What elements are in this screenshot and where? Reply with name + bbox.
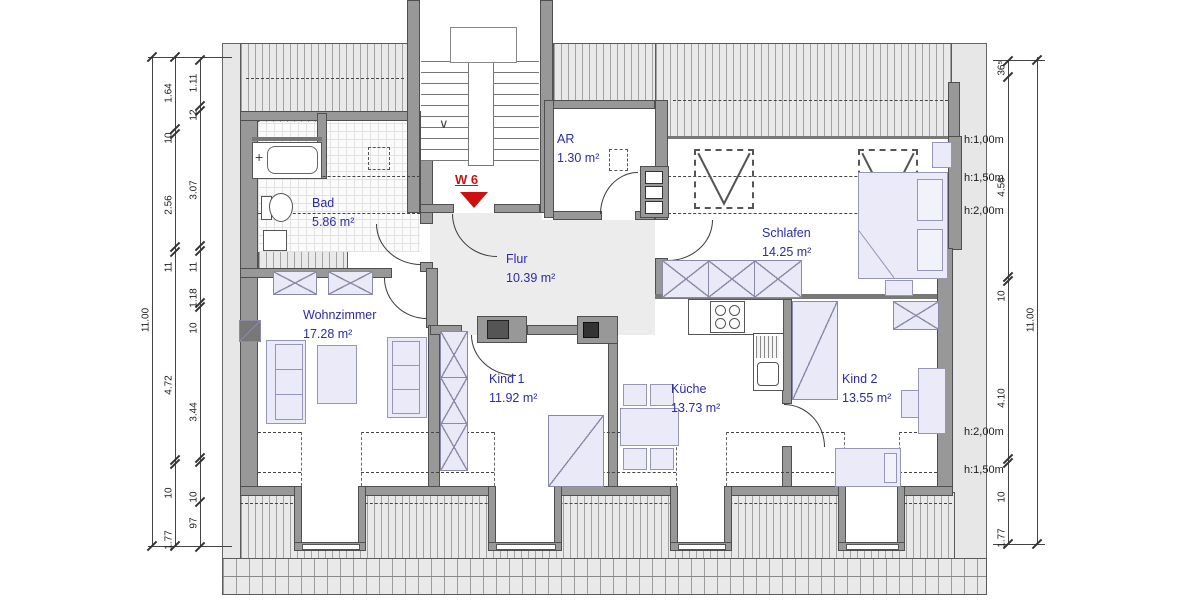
dim-text: 2.56	[164, 195, 175, 214]
bathtub-inner	[267, 146, 318, 174]
chair	[623, 384, 647, 406]
sofa-cushions	[275, 344, 303, 420]
wall-bottom-5	[902, 486, 953, 496]
roof-dash-right	[673, 100, 948, 101]
eaves-midline	[223, 576, 986, 577]
dim-text: 11	[189, 262, 200, 272]
bathtub-tap: +	[255, 149, 263, 165]
dim-text: 3.07	[189, 180, 200, 199]
sofa-right	[387, 337, 427, 418]
room-label-schlafen: Schlafen 14.25 m²	[762, 224, 811, 262]
room-area: 17.28 m²	[303, 325, 376, 344]
wall-bottom-4	[730, 486, 840, 496]
dim-text: 12	[189, 109, 200, 120]
wardrobe-kind2-tall	[792, 301, 838, 400]
dim-text: 3.44	[189, 402, 200, 421]
dormer-1-window	[302, 544, 360, 550]
pillow	[884, 453, 897, 483]
dim-text: 36⁵	[997, 60, 1008, 75]
skylight-bad	[368, 147, 390, 170]
stairs-stringer	[468, 54, 494, 166]
sideboard-2	[328, 271, 373, 295]
unit-marker-icon	[460, 192, 488, 208]
dim-text: 11.00	[1026, 308, 1037, 332]
wardrobe-kind1-2	[440, 377, 468, 425]
height-label: h:1,50m	[964, 464, 1004, 476]
wall-bottom-1	[240, 486, 296, 496]
wall-bad-top	[240, 111, 432, 121]
dim-text: 10	[164, 132, 175, 143]
sink-unit	[753, 333, 784, 391]
room-label-kueche: Küche 13.73 m²	[671, 380, 720, 418]
dormer-4-left	[838, 486, 846, 548]
room-area: 10.39 m²	[506, 269, 555, 288]
dim-line	[1008, 60, 1009, 545]
skylight-ar	[609, 149, 628, 171]
dim-line	[148, 57, 232, 58]
height-line-200-bot-2	[361, 432, 494, 433]
chair	[623, 448, 647, 470]
shaft-block	[640, 166, 669, 218]
wall-ar-left	[544, 100, 554, 218]
dim-text: 97	[189, 517, 200, 528]
wall-kind1-kueche	[608, 343, 618, 492]
wall-flur-bottom-2	[527, 325, 579, 335]
dim-text: 10	[997, 491, 1008, 502]
wall-schlafen-top-line	[668, 136, 950, 139]
dim-text: 11.00	[141, 308, 152, 332]
sofa-left	[266, 340, 306, 424]
dim-text: 1.11	[189, 74, 200, 93]
room-name: Bad	[312, 194, 354, 213]
room-name: Kind 2	[842, 370, 891, 389]
room-label-kind1: Kind 1 11.92 m²	[489, 370, 537, 408]
bed-schlafen	[858, 172, 948, 279]
drainboard	[756, 336, 779, 358]
room-name: Küche	[671, 380, 720, 399]
toilet	[261, 193, 293, 221]
room-label-bad: Bad 5.86 m²	[312, 194, 354, 232]
roof-hatch-top-schlafen	[655, 43, 952, 139]
height-label: h:2,00m	[964, 205, 1004, 217]
chimney-flur-core	[584, 323, 598, 337]
dormer-dash	[361, 432, 362, 486]
height-line-150-bot-5	[899, 472, 937, 473]
room-area: 11.92 m²	[489, 389, 537, 408]
dormer-3-left	[670, 486, 678, 548]
wall-bottom-2	[364, 486, 490, 496]
dim-text: 1.18	[189, 288, 200, 307]
stairs-direction-arrow: ∨	[439, 116, 449, 132]
room-area: 5.86 m²	[312, 213, 354, 232]
room-area: 13.73 m²	[671, 399, 720, 418]
room-label-wohnzimmer: Wohnzimmer 17.28 m²	[303, 306, 376, 344]
wall-ar-bottom-left	[553, 211, 602, 220]
wall-tub-top	[252, 137, 322, 141]
sofa-cushions	[392, 341, 420, 414]
wardrobe-schlafen-1	[662, 260, 710, 298]
chair	[901, 390, 919, 418]
bed-kind2	[835, 448, 901, 487]
eaves-band	[222, 558, 987, 595]
skylight-v-icon	[696, 151, 752, 207]
room-label-ar: AR 1.30 m²	[557, 130, 599, 168]
wardrobe-schlafen-2	[708, 260, 756, 298]
dormer-4	[840, 492, 903, 544]
roof-hatch-top-left	[240, 43, 409, 118]
dormer-1-right	[358, 486, 366, 548]
chimney-wohnzimmer	[239, 320, 261, 342]
room-label-kind2: Kind 2 13.55 m²	[842, 370, 891, 408]
shaft-slot	[646, 202, 662, 213]
wall-right-top	[948, 82, 960, 138]
wall-kind1-wohnzimmer	[428, 325, 440, 492]
dormer-2-window	[496, 544, 556, 550]
dormer-dash	[726, 432, 727, 486]
room-name: Wohnzimmer	[303, 306, 376, 325]
dormer-dash	[301, 432, 302, 486]
stairs-upper-outline	[450, 27, 517, 63]
sink-basin	[757, 362, 779, 386]
wardrobe-kind1-1	[440, 331, 468, 379]
nightstand-1	[932, 142, 952, 168]
wall-wohnzimmer-flur	[426, 268, 438, 328]
wardrobe-kind2-small	[893, 301, 939, 330]
dim-line	[1037, 57, 1038, 545]
wall-entry-left	[420, 204, 454, 213]
pillow	[917, 179, 943, 221]
chimney-flur	[577, 316, 618, 344]
dormer-2-left	[488, 486, 496, 548]
roof-dash-left	[246, 78, 404, 79]
dim-text: 11	[164, 262, 175, 272]
floor-plan: ∨ +	[0, 0, 1200, 600]
dormer-2	[490, 492, 560, 544]
dormer-3	[672, 492, 730, 544]
wall-stair-left	[407, 0, 420, 213]
wardrobe-kind1-3	[440, 423, 468, 471]
room-name: Kind 1	[489, 370, 537, 389]
bed-kind1	[548, 415, 604, 487]
dormer-2-right	[554, 486, 562, 548]
burner	[715, 318, 726, 329]
bathtub: +	[252, 142, 322, 179]
height-line-200-bot-1	[258, 432, 301, 433]
toilet-bowl	[269, 193, 293, 222]
room-name: Flur	[506, 250, 555, 269]
wall-bottom-3	[560, 486, 672, 496]
room-area: 14.25 m²	[762, 243, 811, 262]
burner	[729, 305, 740, 316]
dormer-3-right	[724, 486, 732, 548]
dim-text: 10	[189, 322, 200, 333]
dormer-1-left	[294, 486, 302, 548]
height-label: h:1,50m	[964, 172, 1004, 184]
dim-text: 4.10	[997, 388, 1008, 407]
room-area: 1.30 m²	[557, 149, 599, 168]
room-name: Schlafen	[762, 224, 811, 243]
dim-text: 10	[189, 491, 200, 502]
desk-kind2	[918, 368, 946, 434]
pillow	[917, 229, 943, 271]
wall-ar-top	[544, 100, 655, 109]
height-label: h:1,00m	[964, 134, 1004, 146]
skylight-schlafen-1	[694, 149, 754, 209]
wardrobe-schlafen-3	[754, 260, 802, 298]
room-label-flur: Flur 10.39 m²	[506, 250, 555, 288]
shaft-slot	[646, 187, 662, 198]
wall-entry-right	[494, 204, 540, 213]
burner	[715, 305, 726, 316]
dim-line	[148, 546, 232, 547]
shaft-slot	[646, 172, 662, 183]
room-name: AR	[557, 130, 599, 149]
dormer-dash	[494, 432, 495, 486]
dormer-3-window	[678, 544, 726, 550]
chair	[650, 448, 674, 470]
dormer-4-window	[846, 544, 899, 550]
roof-hatch-top-ar	[553, 43, 657, 103]
sideboard-1	[273, 271, 317, 295]
dim-line	[152, 57, 153, 547]
nightstand-2	[885, 280, 913, 296]
height-line-150-bot-1	[258, 472, 301, 473]
stove	[710, 301, 745, 333]
height-label: h:2,00m	[964, 426, 1004, 438]
dormer-4-right	[897, 486, 905, 548]
burner	[729, 318, 740, 329]
coffee-table	[317, 345, 357, 404]
height-line-150-bot-4	[726, 472, 844, 473]
dim-text: 4.72	[164, 375, 175, 394]
unit-label: W 6	[455, 172, 478, 187]
bad-sink	[263, 230, 287, 251]
dormer-1	[296, 492, 364, 544]
dim-text: 10	[997, 290, 1008, 301]
height-line-150-bot-2	[361, 472, 494, 473]
dim-text: 1.77	[997, 528, 1008, 547]
dim-text: 1.64	[164, 83, 175, 102]
dim-text: 1.77	[164, 530, 175, 549]
room-area: 13.55 m²	[842, 389, 891, 408]
dim-text: 10	[164, 487, 175, 498]
